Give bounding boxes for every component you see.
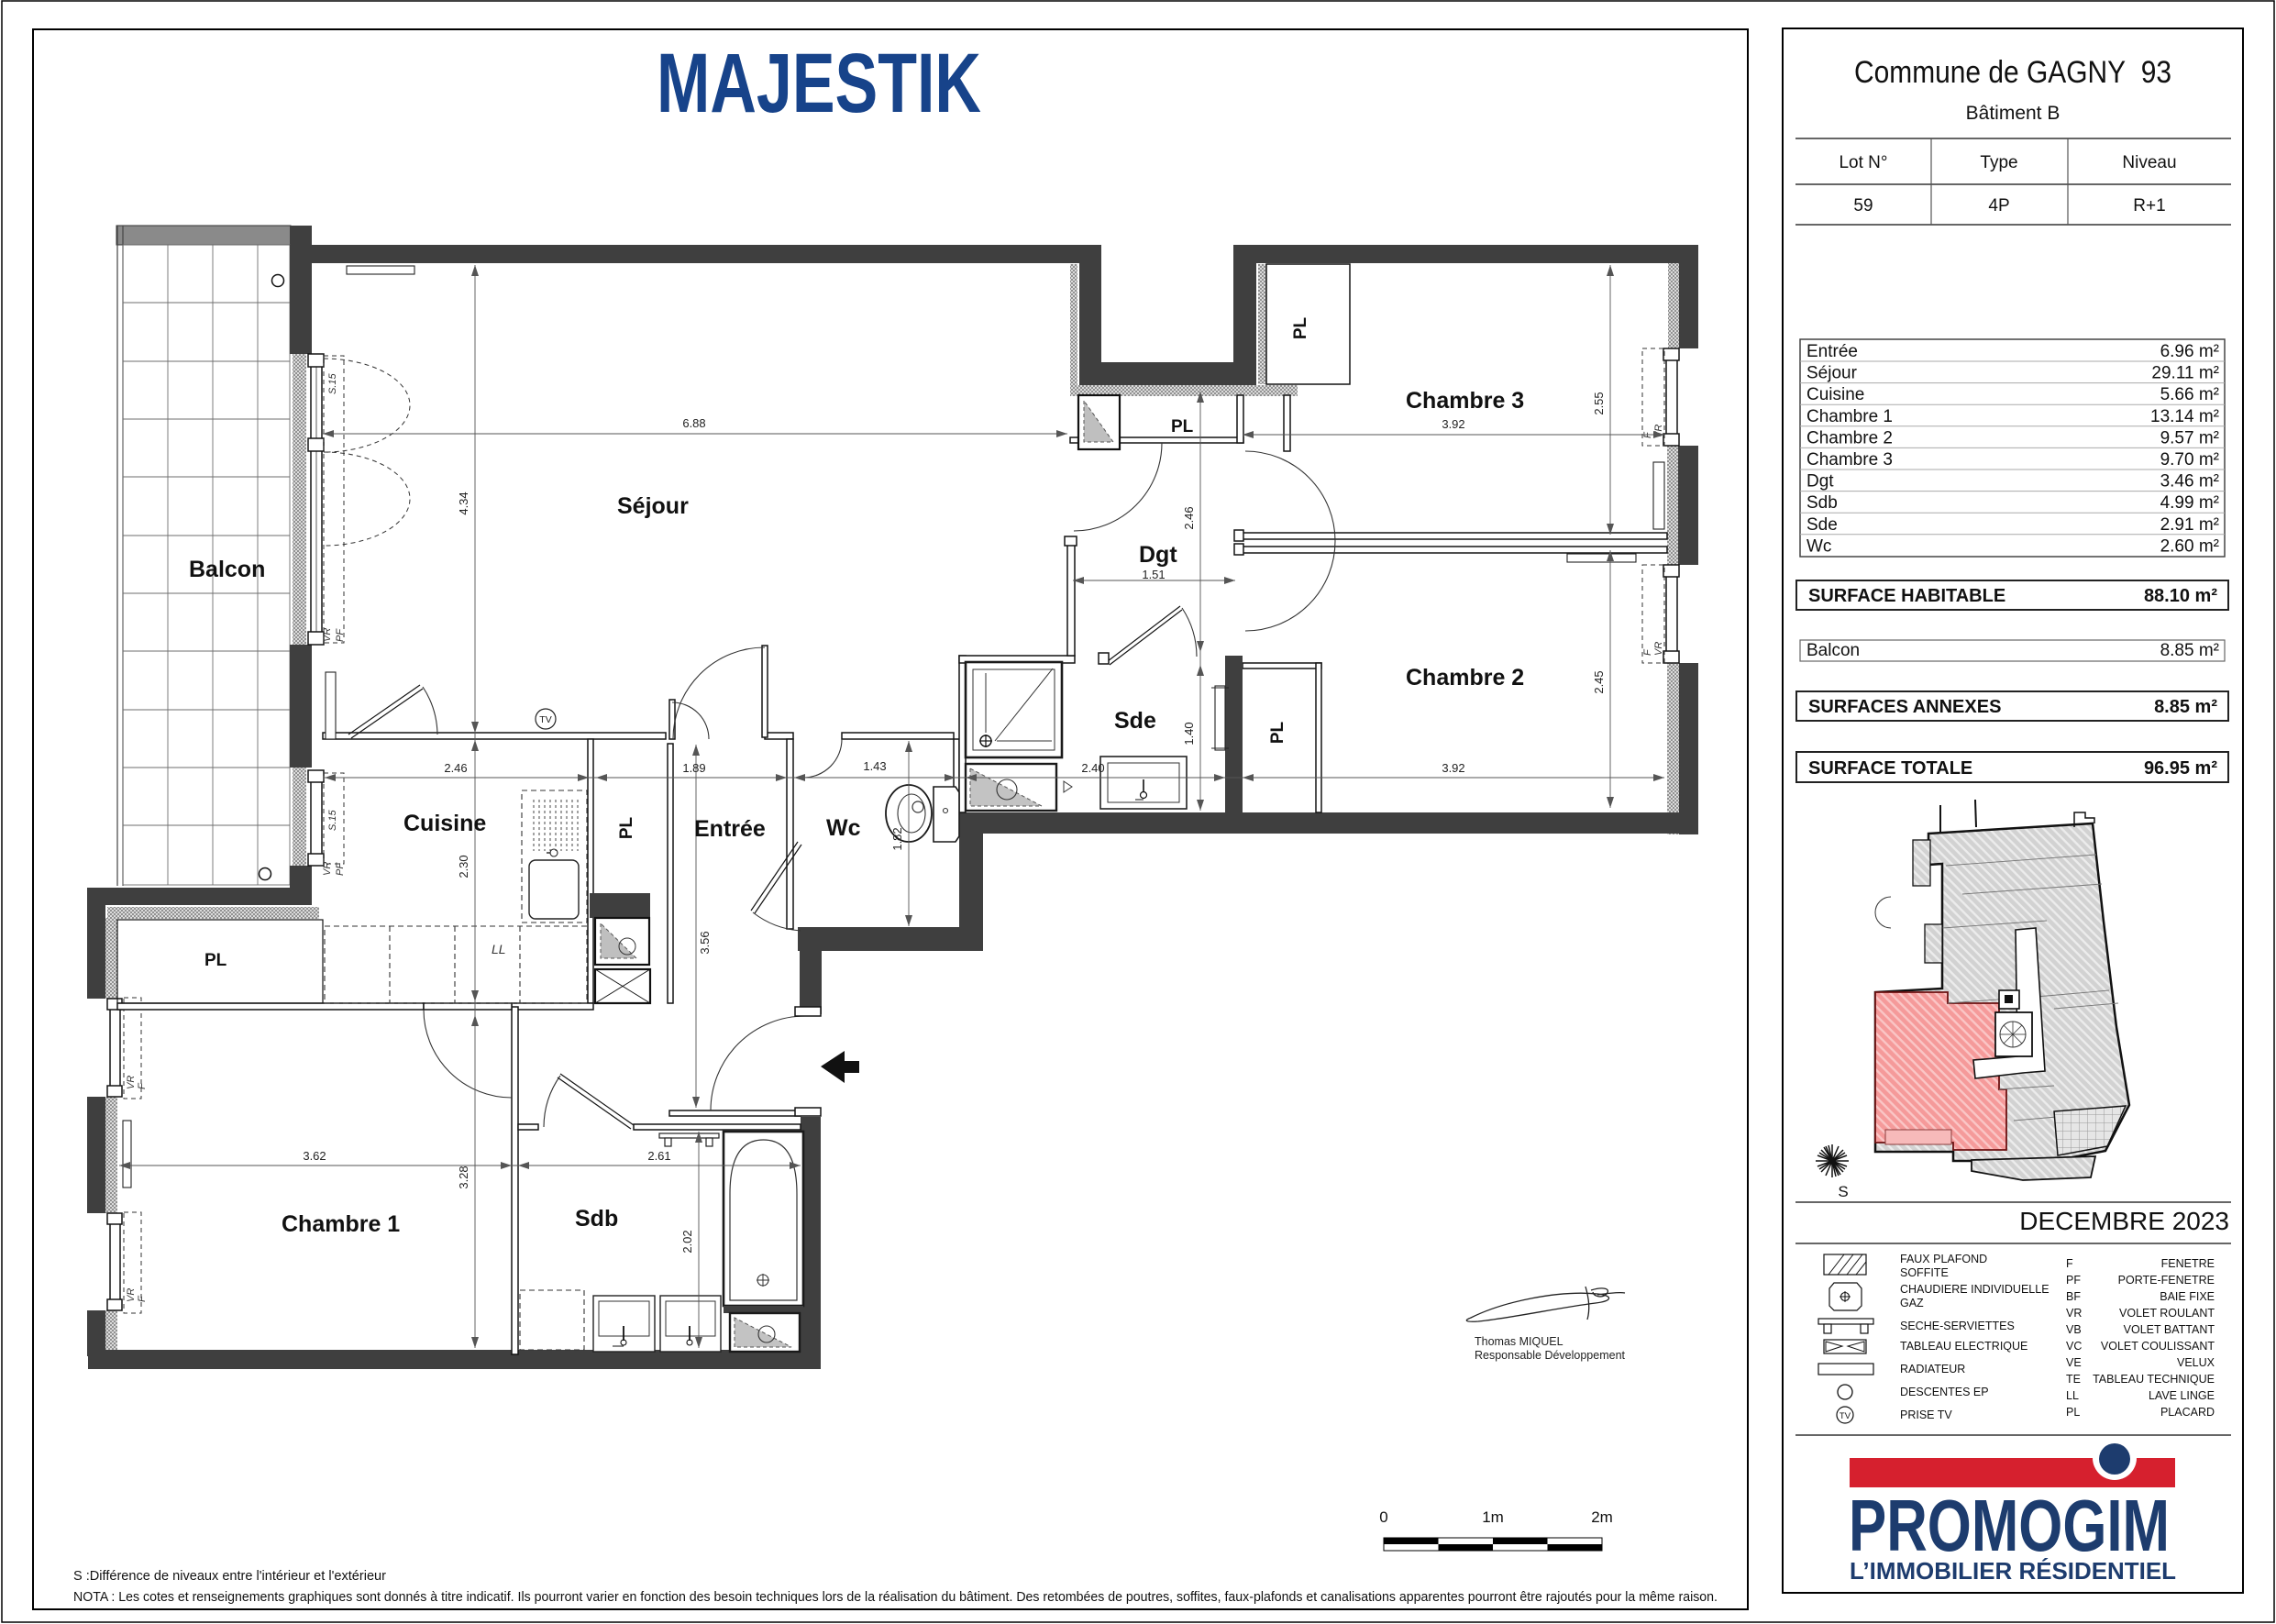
svg-text:1.82: 1.82 xyxy=(890,827,904,850)
svg-text:2.46: 2.46 xyxy=(1182,506,1196,529)
svg-text:Chambre 1: Chambre 1 xyxy=(282,1211,400,1237)
svg-text:4P: 4P xyxy=(1988,196,2009,215)
svg-text:LL: LL xyxy=(492,942,506,956)
svg-text:PL: PL xyxy=(1171,417,1194,436)
svg-text:3.92: 3.92 xyxy=(1442,417,1464,431)
svg-text:VE: VE xyxy=(2066,1356,2082,1369)
svg-text:LAVE LINGE: LAVE LINGE xyxy=(2149,1389,2215,1402)
svg-text:LL: LL xyxy=(2066,1389,2079,1402)
svg-text:PLACARD: PLACARD xyxy=(2160,1406,2215,1419)
svg-text:VR: VR xyxy=(322,628,333,642)
svg-text:Sde: Sde xyxy=(1114,708,1156,734)
svg-text:1.51: 1.51 xyxy=(1142,568,1165,581)
svg-text:Chambre 3: Chambre 3 xyxy=(1406,388,1524,414)
svg-text:SURFACE HABITABLE: SURFACE HABITABLE xyxy=(1808,586,2005,606)
svg-text:DECEMBRE 2023: DECEMBRE 2023 xyxy=(2019,1207,2229,1235)
svg-text:8.85 m²: 8.85 m² xyxy=(2154,697,2217,717)
svg-text:Sde: Sde xyxy=(1806,515,1838,535)
svg-text:29.11 m²: 29.11 m² xyxy=(2151,364,2219,383)
svg-text:Bâtiment B: Bâtiment B xyxy=(1966,103,2061,124)
svg-text:2.30: 2.30 xyxy=(457,855,470,878)
svg-text:VR: VR xyxy=(126,1076,137,1089)
svg-text:S.15: S.15 xyxy=(327,372,338,394)
svg-text:TABLEAU TECHNIQUE: TABLEAU TECHNIQUE xyxy=(2093,1373,2215,1386)
svg-text:VOLET BATTANT: VOLET BATTANT xyxy=(2124,1323,2215,1336)
svg-text:PF: PF xyxy=(335,862,346,876)
svg-text:PL: PL xyxy=(617,816,636,839)
svg-text:Commune de GAGNY 93: Commune de GAGNY 93 xyxy=(1854,55,2171,90)
svg-text:9.70 m²: 9.70 m² xyxy=(2160,450,2219,470)
svg-text:2m: 2m xyxy=(1591,1508,1613,1526)
svg-text:6.96 m²: 6.96 m² xyxy=(2160,342,2219,361)
svg-text:GAZ: GAZ xyxy=(1900,1297,1924,1309)
svg-text:S.15: S.15 xyxy=(327,809,338,831)
svg-text:PRISE TV: PRISE TV xyxy=(1900,1409,1952,1421)
svg-text:PF: PF xyxy=(2066,1274,2081,1287)
svg-text:VR: VR xyxy=(126,1288,137,1302)
svg-text:4.99 m²: 4.99 m² xyxy=(2160,493,2219,513)
svg-text:DESCENTES EP: DESCENTES EP xyxy=(1900,1386,1989,1398)
svg-text:VR: VR xyxy=(322,862,333,876)
svg-text:5.66 m²: 5.66 m² xyxy=(2160,385,2219,404)
svg-text:Sdb: Sdb xyxy=(575,1206,618,1232)
svg-text:6.88: 6.88 xyxy=(682,416,705,430)
svg-text:VR: VR xyxy=(1653,642,1664,656)
svg-text:Responsable Développement: Responsable Développement xyxy=(1475,1349,1626,1362)
svg-text:TV: TV xyxy=(539,714,551,725)
svg-text:MAJESTIK: MAJESTIK xyxy=(657,37,981,130)
svg-text:Chambre 3: Chambre 3 xyxy=(1806,450,1893,470)
svg-text:PL: PL xyxy=(1291,316,1310,339)
svg-text:Chambre 2: Chambre 2 xyxy=(1406,665,1524,690)
svg-text:Dgt: Dgt xyxy=(1139,542,1177,568)
svg-text:Entrée: Entrée xyxy=(1806,342,1858,361)
svg-text:0: 0 xyxy=(1379,1508,1387,1526)
svg-text:VR: VR xyxy=(2066,1307,2082,1320)
svg-text:Cuisine: Cuisine xyxy=(403,811,486,836)
svg-text:2.61: 2.61 xyxy=(647,1149,670,1163)
svg-text:59: 59 xyxy=(1853,196,1873,215)
svg-text:Type: Type xyxy=(1980,153,2017,172)
svg-text:SURFACES ANNEXES: SURFACES ANNEXES xyxy=(1808,697,2001,717)
svg-text:VB: VB xyxy=(2066,1323,2082,1336)
svg-text:Wc: Wc xyxy=(1806,536,1831,556)
svg-text:Entrée: Entrée xyxy=(694,816,766,842)
svg-text:TABLEAU ELECTRIQUE: TABLEAU ELECTRIQUE xyxy=(1900,1340,2027,1353)
svg-text:2.55: 2.55 xyxy=(1592,392,1606,414)
svg-text:9.57 m²: 9.57 m² xyxy=(2160,428,2219,447)
svg-text:S :Différence de niveaux entre: S :Différence de niveaux entre l'intérie… xyxy=(73,1569,386,1584)
svg-text:PF: PF xyxy=(335,628,346,642)
svg-text:88.10 m²: 88.10 m² xyxy=(2144,586,2217,606)
svg-text:1.40: 1.40 xyxy=(1182,722,1196,745)
svg-text:L’IMMOBILIER RÉSIDENTIEL: L’IMMOBILIER RÉSIDENTIEL xyxy=(1850,1557,2176,1585)
svg-text:Sdb: Sdb xyxy=(1806,493,1838,513)
svg-text:TV: TV xyxy=(1840,1411,1851,1421)
svg-text:2.46: 2.46 xyxy=(444,761,467,775)
svg-text:Lot N°: Lot N° xyxy=(1839,153,1887,172)
svg-text:BF: BF xyxy=(2066,1290,2081,1303)
svg-text:Dgt: Dgt xyxy=(1806,472,1834,492)
svg-text:R+1: R+1 xyxy=(2133,196,2165,215)
svg-text:Séjour: Séjour xyxy=(617,493,689,519)
svg-text:Wc: Wc xyxy=(826,815,861,841)
svg-text:2.40: 2.40 xyxy=(1081,761,1104,775)
svg-text:VC: VC xyxy=(2066,1340,2082,1353)
svg-text:PL: PL xyxy=(2066,1406,2080,1419)
svg-text:SURFACE TOTALE: SURFACE TOTALE xyxy=(1808,758,1972,779)
svg-text:1.89: 1.89 xyxy=(682,761,705,775)
svg-text:8.85 m²: 8.85 m² xyxy=(2160,641,2219,660)
svg-text:3.92: 3.92 xyxy=(1442,761,1464,775)
svg-text:Thomas MIQUEL: Thomas MIQUEL xyxy=(1475,1335,1563,1348)
svg-text:VOLET COULISSANT: VOLET COULISSANT xyxy=(2101,1340,2215,1353)
svg-text:1m: 1m xyxy=(1482,1508,1504,1526)
svg-text:SOFFITE: SOFFITE xyxy=(1900,1266,1949,1279)
svg-text:96.95 m²: 96.95 m² xyxy=(2144,758,2217,779)
svg-text:NOTA : Les cotes et renseignem: NOTA : Les cotes et renseignements graph… xyxy=(73,1590,1718,1605)
svg-text:2.60 m²: 2.60 m² xyxy=(2160,536,2219,556)
svg-text:S: S xyxy=(1838,1183,1848,1200)
svg-text:Cuisine: Cuisine xyxy=(1806,385,1864,404)
svg-text:FENETRE: FENETRE xyxy=(2161,1257,2215,1270)
svg-text:2.02: 2.02 xyxy=(680,1230,694,1253)
svg-text:3.46 m²: 3.46 m² xyxy=(2160,472,2219,492)
svg-text:3.56: 3.56 xyxy=(698,931,712,954)
svg-text:PL: PL xyxy=(1268,721,1287,744)
svg-text:4.34: 4.34 xyxy=(457,492,470,514)
svg-text:CHAUDIERE INDIVIDUELLE: CHAUDIERE INDIVIDUELLE xyxy=(1900,1283,2050,1296)
svg-text:3.62: 3.62 xyxy=(303,1149,326,1163)
svg-text:PORTE-FENETRE: PORTE-FENETRE xyxy=(2118,1274,2215,1287)
svg-text:2.45: 2.45 xyxy=(1592,670,1606,693)
svg-text:1.43: 1.43 xyxy=(863,759,886,773)
svg-text:TE: TE xyxy=(2066,1373,2081,1386)
svg-text:RADIATEUR: RADIATEUR xyxy=(1900,1363,1965,1375)
svg-text:BAIE FIXE: BAIE FIXE xyxy=(2160,1290,2215,1303)
svg-text:SECHE-SERVIETTES: SECHE-SERVIETTES xyxy=(1900,1320,2015,1332)
svg-text:Balcon: Balcon xyxy=(1806,641,1860,660)
svg-text:Séjour: Séjour xyxy=(1806,364,1858,383)
svg-text:VOLET ROULANT: VOLET ROULANT xyxy=(2119,1307,2215,1320)
svg-text:13.14 m²: 13.14 m² xyxy=(2150,407,2219,426)
svg-text:PL: PL xyxy=(204,951,227,970)
svg-text:Chambre 2: Chambre 2 xyxy=(1806,428,1893,447)
svg-text:Chambre 1: Chambre 1 xyxy=(1806,407,1893,426)
svg-text:F: F xyxy=(2066,1257,2073,1270)
svg-text:Balcon: Balcon xyxy=(189,557,265,582)
svg-text:FAUX PLAFOND: FAUX PLAFOND xyxy=(1900,1253,1987,1265)
svg-text:Niveau: Niveau xyxy=(2122,153,2176,172)
svg-text:PROMOGIM: PROMOGIM xyxy=(1849,1485,2170,1566)
svg-text:VELUX: VELUX xyxy=(2177,1356,2215,1369)
svg-text:3.28: 3.28 xyxy=(457,1166,470,1188)
svg-text:2.91 m²: 2.91 m² xyxy=(2160,515,2219,535)
